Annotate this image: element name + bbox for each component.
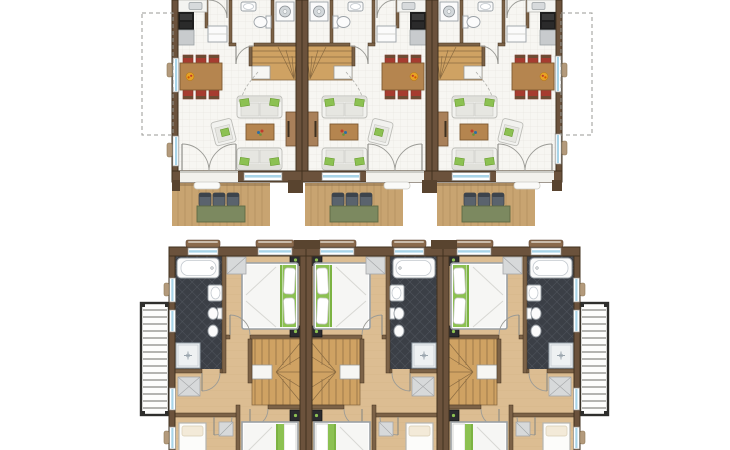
window-box — [580, 283, 585, 296]
deck-pillar — [422, 180, 437, 193]
unit-3 — [432, 0, 562, 189]
unit-2 — [306, 240, 443, 450]
window-box — [562, 141, 567, 155]
window-box — [164, 431, 169, 444]
window-box — [562, 63, 567, 77]
ground-floor-plan — [138, 0, 598, 234]
window-box — [580, 431, 585, 444]
chimney-cap — [294, 240, 320, 249]
upper-floor-plan — [134, 238, 616, 450]
terrace-unit-3 — [437, 183, 535, 226]
window-box — [167, 143, 172, 157]
deck-pillar — [288, 180, 303, 193]
chimney-cap — [431, 240, 457, 249]
balcony-right — [579, 302, 609, 416]
floorplan-figure — [0, 0, 730, 450]
balcony-left — [140, 302, 170, 416]
unit-3 — [443, 240, 580, 450]
terrace-unit-2 — [305, 183, 403, 226]
window-box — [164, 283, 169, 296]
deck-pillar — [172, 180, 180, 191]
window-box — [167, 63, 172, 77]
deck-pillar — [552, 180, 562, 191]
terrace-unit-1 — [172, 183, 270, 226]
unit-1 — [172, 0, 302, 189]
unit-1 — [169, 240, 306, 450]
unit-2 — [302, 0, 432, 189]
